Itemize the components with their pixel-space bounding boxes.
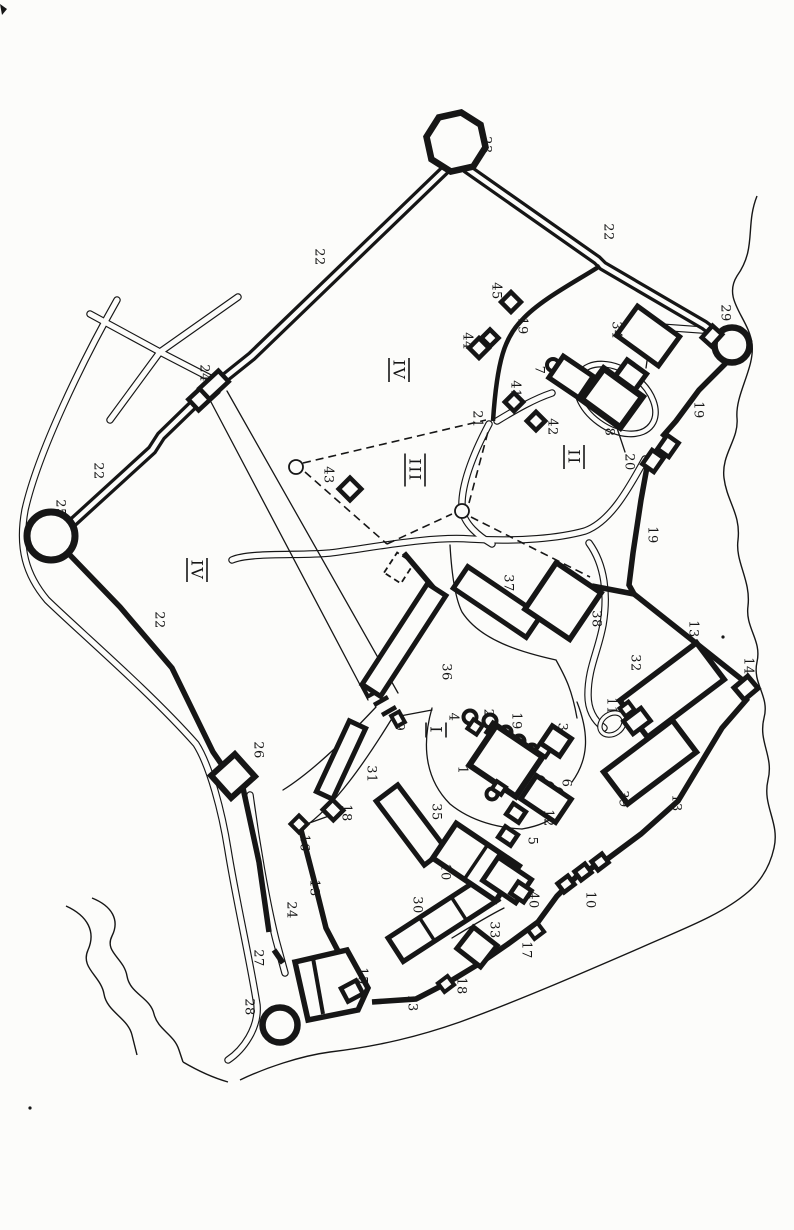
survey-point [455, 504, 469, 518]
rivers [0, 4, 775, 1110]
tower-23 [427, 113, 486, 172]
map-label-19-25: 19 [644, 526, 659, 544]
map-label-25-36: 25 [52, 499, 67, 517]
map-label-13-15: 13 [306, 879, 321, 897]
wall-yard-partition [313, 958, 323, 1014]
map-label-7-6: 7 [531, 366, 546, 375]
building-34 [616, 306, 679, 366]
section-label-III-2: III [405, 458, 424, 481]
map-label-10-10: 10 [582, 891, 597, 909]
building-36 [362, 584, 446, 697]
map-label-22-32: 22 [151, 611, 166, 629]
map-label-29-40: 29 [717, 304, 732, 322]
map-speck [28, 1106, 31, 1109]
building-42 [527, 412, 545, 430]
map-label-16-19: 16 [296, 834, 311, 852]
map-label-8-7: 8 [601, 428, 616, 437]
map-label-19-26: 19 [508, 712, 523, 730]
wall-25-26 [67, 552, 222, 765]
survey-dash [471, 517, 590, 577]
map-label-21-28: 21 [469, 410, 484, 428]
survey-point [289, 460, 303, 474]
section-label-I-0: I [426, 726, 445, 734]
survey-dash [303, 420, 486, 463]
map-label-43-54: 43 [320, 466, 335, 484]
wall-gate-10 [574, 864, 591, 881]
map-label-13-14: 13 [668, 794, 683, 812]
towers [27, 113, 758, 1043]
building-43 [339, 478, 362, 501]
section-label-II-1: II [564, 449, 583, 465]
map-label-4-3: 4 [445, 713, 460, 722]
map-label-9-8: 9 [391, 723, 406, 732]
map-label-14-17: 14 [740, 657, 755, 675]
map-label-19-24: 19 [690, 401, 705, 419]
walls [67, 167, 748, 1020]
map-label-10-9: 10 [437, 863, 452, 881]
stream-line [66, 906, 137, 1055]
building-5 [498, 826, 518, 845]
map-label-6-5: 6 [558, 779, 573, 788]
map-label-38-49: 38 [588, 610, 603, 628]
gate-20 [642, 450, 663, 472]
wall-gate-10 [591, 854, 608, 871]
map-label-15-18: 15 [354, 967, 369, 985]
map-label-22-31: 22 [90, 462, 105, 480]
wall-gate-10 [557, 876, 574, 893]
map-label-20-27: 20 [621, 453, 636, 471]
corridor-turret [291, 816, 308, 833]
map-label-18-22: 18 [453, 977, 468, 995]
stream-line [92, 898, 183, 1062]
stream-line [183, 1062, 228, 1082]
building-37-hall [525, 563, 601, 640]
map-label-33-44: 33 [486, 921, 501, 939]
map-label-12-12: 12 [540, 809, 555, 827]
map-label-22-29: 22 [311, 248, 326, 266]
section-label-IV-3: IV [187, 560, 206, 581]
map-label-28-39: 28 [241, 998, 256, 1016]
labels: 1234567891010111213131313141516171818191… [52, 136, 755, 1016]
wall-turret-18 [438, 976, 454, 992]
tower-28 [263, 1008, 298, 1043]
map-label-36-47: 36 [438, 663, 453, 681]
building-12 [506, 803, 526, 822]
map-label-22-30: 22 [600, 223, 615, 241]
map-label-3-2: 3 [554, 723, 569, 732]
map-label-1-0: 1 [454, 766, 469, 775]
map-label-41-52: 41 [507, 380, 522, 398]
map-label-5-4: 5 [524, 837, 539, 846]
chapel-4 [467, 719, 482, 734]
map-label-13-13: 13 [685, 620, 700, 638]
building-31 [316, 721, 365, 799]
avenue-edge [227, 391, 398, 693]
map-label-26-37: 26 [250, 741, 265, 759]
map-label-19-23: 19 [514, 317, 529, 335]
map-label-13-16: 13 [404, 994, 419, 1012]
map-speck [721, 635, 724, 638]
map-label-24-34: 24 [196, 364, 211, 382]
fortress-site-plan: 1234567891010111213131313141516171818191… [0, 0, 794, 1230]
map-label-2-1: 2 [480, 709, 495, 718]
map-label-40-51: 40 [525, 891, 540, 909]
map-label-17-20: 17 [518, 941, 533, 959]
map-label-37-48: 37 [500, 574, 515, 592]
map-label-35-46: 35 [428, 803, 443, 821]
map-label-18-21: 18 [338, 804, 353, 822]
map-label-42-53: 42 [544, 418, 559, 436]
map-label-30-41: 30 [409, 896, 424, 914]
plan-svg: 1234567891010111213131313141516171818191… [0, 0, 794, 1230]
map-label-24-35: 24 [283, 901, 298, 919]
section-label-IV-4: IV [389, 360, 408, 381]
scan-corner-mark [0, 4, 7, 15]
map-label-45-56: 45 [488, 282, 503, 300]
map-label-23-33: 23 [478, 136, 493, 154]
map-label-39-50: 39 [615, 790, 630, 808]
map-label-31-42: 31 [363, 765, 378, 783]
map-label-44-55: 44 [459, 332, 474, 350]
map-label-27-38: 27 [250, 949, 265, 967]
survey-lines [289, 420, 590, 584]
map-label-32-43: 32 [627, 654, 642, 672]
map-label-34-45: 34 [608, 321, 623, 339]
tower-14 [734, 676, 758, 700]
map-label-11-11: 11 [603, 697, 618, 715]
tower-25 [27, 512, 75, 560]
